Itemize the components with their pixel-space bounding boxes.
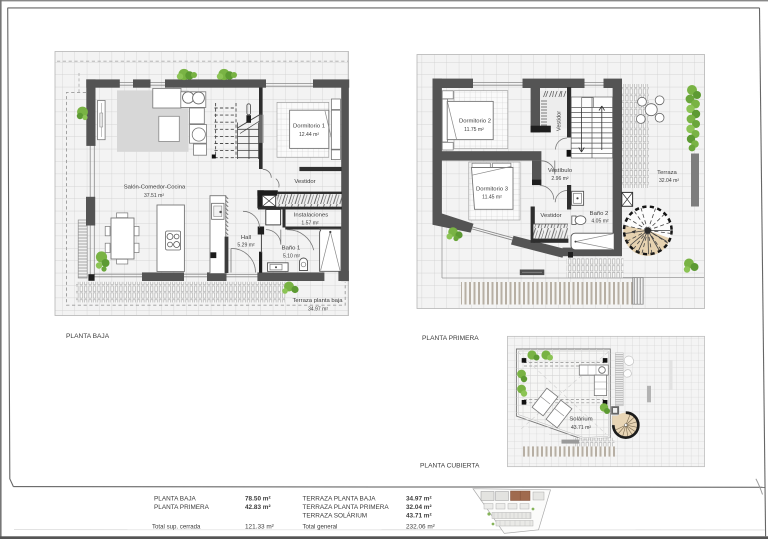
svg-text:78.50 m²: 78.50 m² xyxy=(245,495,271,502)
svg-text:TERRAZA PLANTA PRIMERA: TERRAZA PLANTA PRIMERA xyxy=(303,504,390,511)
svg-text:Baño 2: Baño 2 xyxy=(590,211,609,217)
svg-text:34.97 m²: 34.97 m² xyxy=(406,495,432,502)
svg-text:Dormitorio 1: Dormitorio 1 xyxy=(293,124,325,130)
svg-text:TERRAZA SOLÁRIUM: TERRAZA SOLÁRIUM xyxy=(303,511,368,520)
svg-text:2.96 m²: 2.96 m² xyxy=(551,176,569,182)
svg-text:Vestidor: Vestidor xyxy=(294,179,315,185)
svg-text:32.04 m²: 32.04 m² xyxy=(406,504,432,511)
svg-text:32.04 m²: 32.04 m² xyxy=(659,178,679,184)
svg-text:Dormitorio 3: Dormitorio 3 xyxy=(476,186,509,192)
svg-text:34.97 m²: 34.97 m² xyxy=(308,306,328,312)
svg-text:Vestíbulo: Vestíbulo xyxy=(548,168,573,174)
svg-text:Total sup. cerrada: Total sup. cerrada xyxy=(152,523,201,530)
svg-text:PLANTA BAJA: PLANTA BAJA xyxy=(66,333,110,340)
svg-text:Hall: Hall xyxy=(241,235,251,241)
svg-text:5.10 m²: 5.10 m² xyxy=(283,254,301,260)
svg-text:4.05 m²: 4.05 m² xyxy=(591,219,609,225)
svg-text:Terraza planta baja: Terraza planta baja xyxy=(292,298,343,304)
svg-text:PLANTA PRIMERA: PLANTA PRIMERA xyxy=(154,504,210,511)
svg-text:37.51 m²: 37.51 m² xyxy=(144,193,164,199)
svg-text:43.71 m²: 43.71 m² xyxy=(406,513,432,520)
svg-text:11.45 m²: 11.45 m² xyxy=(482,195,502,201)
svg-text:PLANTA PRIMERA: PLANTA PRIMERA xyxy=(422,335,479,342)
svg-text:43.71 m²: 43.71 m² xyxy=(571,425,591,431)
svg-text:Vestidor: Vestidor xyxy=(540,213,561,219)
svg-text:Solárium: Solárium xyxy=(569,417,592,423)
svg-text:Vestidor: Vestidor xyxy=(557,111,563,131)
svg-text:11.75 m²: 11.75 m² xyxy=(464,127,484,133)
svg-text:232.06 m²: 232.06 m² xyxy=(406,523,435,530)
svg-text:1.57 m²: 1.57 m² xyxy=(301,221,319,227)
svg-text:Terraza: Terraza xyxy=(657,170,677,176)
svg-text:121.33 m²: 121.33 m² xyxy=(245,523,274,530)
svg-text:42.83 m²: 42.83 m² xyxy=(245,504,271,511)
svg-text:Dormitorio 2: Dormitorio 2 xyxy=(459,118,491,124)
svg-text:12.44 m²: 12.44 m² xyxy=(299,132,319,138)
svg-text:TERRAZA PLANTA BAJA: TERRAZA PLANTA BAJA xyxy=(303,495,377,502)
svg-text:Salón-Comedor-Cocina: Salón-Comedor-Cocina xyxy=(124,184,186,190)
svg-text:Total general: Total general xyxy=(303,523,338,530)
svg-text:Baño 1: Baño 1 xyxy=(282,246,301,252)
svg-text:5.29 m²: 5.29 m² xyxy=(237,242,255,248)
svg-text:PLANTA BAJA: PLANTA BAJA xyxy=(154,495,197,502)
svg-text:Instalaciones: Instalaciones xyxy=(294,213,328,219)
svg-text:PLANTA CUBIERTA: PLANTA CUBIERTA xyxy=(420,463,480,470)
